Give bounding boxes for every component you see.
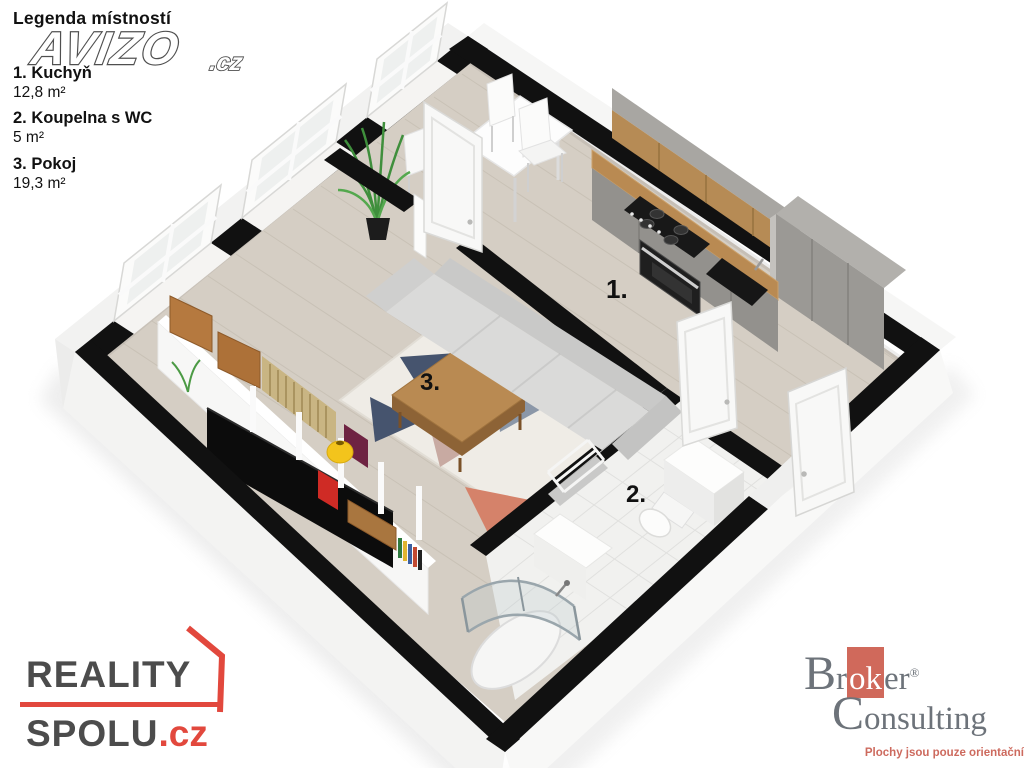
room-label-bathroom: 2. <box>626 481 646 508</box>
floor-plan-page: 1. 2. 3. Legenda místností AVIZO .cz 1. … <box>0 0 1024 768</box>
reality-spolu-logo: REALITY SPOLU.cz <box>20 618 250 758</box>
door-entry <box>788 368 854 516</box>
broker-line2: Consulting <box>832 690 1024 738</box>
legend-item: 3. Pokoj 19,3 m² <box>13 155 253 193</box>
vase <box>327 441 353 463</box>
door-bathroom <box>677 302 737 446</box>
broker-consulting-logo: Broker® Consulting Plochy jsou pouze ori… <box>792 650 1024 759</box>
legend-item: 2. Koupelna s WC 5 m² <box>13 109 253 147</box>
broker-tagline: Plochy jsou pouze orientační <box>792 747 1024 759</box>
legend-item: 1. Kuchyň 12,8 m² <box>13 64 253 102</box>
reality-spolu-line1: REALITY <box>26 654 191 696</box>
legend-items: 1. Kuchyň 12,8 m² 2. Koupelna s WC 5 m² … <box>13 57 253 193</box>
red-underline <box>20 702 220 707</box>
room-legend: Legenda místností AVIZO .cz 1. Kuchyň 12… <box>0 0 280 200</box>
room-label-kitchen: 1. <box>606 274 628 304</box>
room-label-living: 3. <box>420 369 440 396</box>
reality-spolu-line2: SPOLU.cz <box>26 713 208 755</box>
